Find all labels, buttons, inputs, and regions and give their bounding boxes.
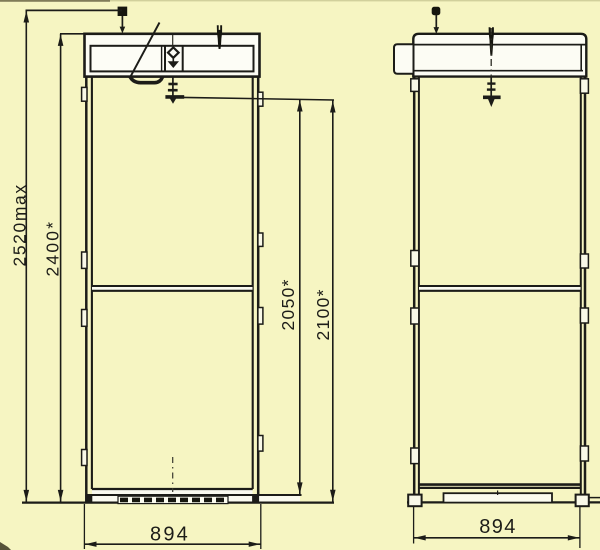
svg-text:2050*: 2050* (278, 278, 298, 330)
svg-text:2100*: 2100* (313, 288, 333, 340)
svg-text:894: 894 (479, 516, 517, 538)
svg-text:2400*: 2400* (43, 220, 63, 277)
svg-text:894: 894 (150, 524, 190, 546)
svg-text:2520max: 2520max (10, 183, 30, 266)
